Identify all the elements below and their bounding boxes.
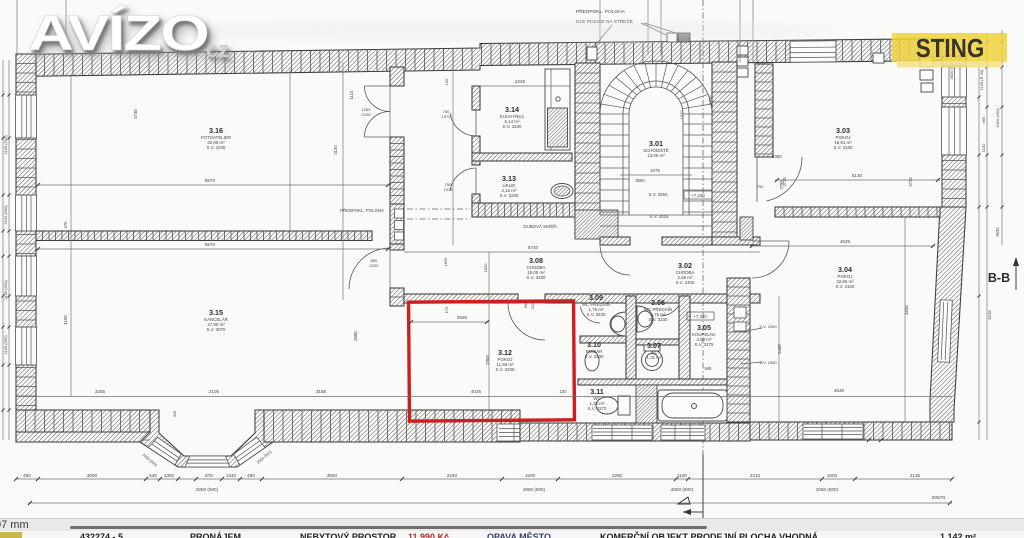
svg-text:3000: 3000 <box>87 473 98 478</box>
svg-text:8570: 8570 <box>205 242 216 247</box>
svg-text:470: 470 <box>63 221 68 229</box>
svg-text:150: 150 <box>444 78 449 85</box>
svg-text:750: 750 <box>757 184 764 189</box>
svg-text:2135: 2135 <box>910 473 921 478</box>
svg-text:S.V. 3250: S.V. 3250 <box>649 192 668 197</box>
svg-text:S.V. 3160: S.V. 3160 <box>834 145 853 150</box>
svg-text:2635: 2635 <box>457 315 468 320</box>
svg-text:S.V. 3025: S.V. 3025 <box>650 214 669 219</box>
svg-text:2100 (900): 2100 (900) <box>3 135 8 155</box>
svg-text:1295: 1295 <box>708 95 713 105</box>
svg-text:2200: 2200 <box>370 263 380 268</box>
svg-text:S.V. 3270: S.V. 3270 <box>588 406 607 411</box>
svg-text:1970: 1970 <box>679 110 684 120</box>
svg-text:4845: 4845 <box>904 305 909 315</box>
svg-text:S.V. 3230: S.V. 3230 <box>496 367 515 372</box>
svg-text:3.05: 3.05 <box>697 323 711 332</box>
svg-text:2100 (900): 2100 (900) <box>3 205 8 225</box>
svg-text:2100: 2100 <box>362 112 372 117</box>
svg-text:3.08: 3.08 <box>529 256 543 265</box>
svg-text:2050 (900): 2050 (900) <box>141 453 158 468</box>
svg-text:2225: 2225 <box>515 79 526 84</box>
svg-text:1970: 1970 <box>442 114 452 119</box>
svg-text:1970: 1970 <box>444 187 454 192</box>
svg-text:3.13: 3.13 <box>502 174 516 183</box>
svg-text:5130: 5130 <box>852 173 863 178</box>
svg-text:S.V. 3275: S.V. 3275 <box>695 342 714 347</box>
svg-text:1340: 1340 <box>226 473 237 478</box>
svg-text:540: 540 <box>149 473 157 478</box>
svg-text:S.V. 3160: S.V. 3160 <box>836 284 855 289</box>
svg-text:13,05 m²: 13,05 m² <box>647 153 665 158</box>
svg-text:4025: 4025 <box>471 389 482 394</box>
svg-text:S.V. 3230: S.V. 3230 <box>207 145 226 150</box>
svg-text:+7,240: +7,240 <box>691 193 705 198</box>
svg-text:20670: 20670 <box>932 495 946 501</box>
svg-text:3.09: 3.09 <box>589 293 603 302</box>
svg-text:4530: 4530 <box>834 388 845 393</box>
svg-text:9635: 9635 <box>995 227 1000 237</box>
svg-text:870: 870 <box>205 473 213 478</box>
svg-text:4100: 4100 <box>63 315 68 325</box>
svg-text:1060: 1060 <box>772 154 782 159</box>
svg-text:3725: 3725 <box>908 177 913 187</box>
svg-text:3.06: 3.06 <box>651 298 665 307</box>
svg-text:2050 (900): 2050 (900) <box>671 487 694 492</box>
svg-text:S.V. 1900: S.V. 1900 <box>759 324 777 329</box>
svg-text:2105: 2105 <box>209 389 220 394</box>
svg-text:2100 (900): 2100 (900) <box>3 280 8 300</box>
svg-text:1350: 1350 <box>164 473 175 478</box>
svg-text:3400: 3400 <box>777 344 782 354</box>
svg-text:3580: 3580 <box>353 331 358 341</box>
svg-text:3.16: 3.16 <box>209 126 223 135</box>
svg-text:450: 450 <box>23 473 31 478</box>
svg-text:3740: 3740 <box>133 109 138 119</box>
svg-text:8570: 8570 <box>205 178 216 183</box>
svg-text:DUBOVÁ SKŘÍŇ: DUBOVÁ SKŘÍŇ <box>523 224 556 229</box>
svg-text:PŘEDPOKL. POLOHA: PŘEDPOKL. POLOHA <box>340 208 384 213</box>
svg-text:5740: 5740 <box>528 245 539 250</box>
svg-text:1920 (900): 1920 (900) <box>995 108 1000 128</box>
svg-text:3255: 3255 <box>95 389 106 394</box>
svg-text:DLE POZICE NA STŘEŠE: DLE POZICE NA STŘEŠE <box>576 17 633 25</box>
svg-text:B-B: B-B <box>988 271 1010 285</box>
svg-text:3.12: 3.12 <box>498 348 512 357</box>
svg-text:3725: 3725 <box>782 177 787 187</box>
svg-text:1100 (R.30): 1100 (R.30) <box>979 69 984 90</box>
svg-text:3.14: 3.14 <box>505 105 519 114</box>
svg-text:170: 170 <box>444 306 449 313</box>
svg-text:3560: 3560 <box>635 178 645 183</box>
svg-text:+7,340: +7,340 <box>693 314 707 319</box>
svg-text:665: 665 <box>981 116 986 123</box>
svg-text:3185: 3185 <box>316 389 327 394</box>
svg-text:1830: 1830 <box>483 263 488 273</box>
svg-text:2240: 2240 <box>447 473 458 478</box>
svg-text:3130: 3130 <box>333 145 338 155</box>
svg-text:1075: 1075 <box>650 168 660 173</box>
svg-text:2100: 2100 <box>530 300 535 310</box>
svg-text:945: 945 <box>705 366 713 371</box>
svg-text:1100: 1100 <box>981 143 986 152</box>
svg-text:3.02: 3.02 <box>678 261 692 270</box>
svg-text:3630 (900): 3630 (900) <box>950 60 954 79</box>
svg-text:2905: 2905 <box>485 355 490 365</box>
svg-text:S.V. 3070: S.V. 3070 <box>207 327 226 332</box>
svg-text:3.10: 3.10 <box>587 340 601 349</box>
svg-text:2310: 2310 <box>750 473 761 478</box>
svg-text:S.V. 2400: S.V. 2400 <box>676 280 695 285</box>
svg-text:2050 (900): 2050 (900) <box>816 487 839 492</box>
svg-text:S.V. 3230: S.V. 3230 <box>527 275 546 280</box>
svg-text:2050 (900): 2050 (900) <box>196 487 219 492</box>
svg-text:3550: 3550 <box>327 473 338 478</box>
svg-text:1500: 1500 <box>525 473 536 478</box>
svg-text:100: 100 <box>560 389 568 394</box>
svg-text:900: 900 <box>523 301 528 308</box>
svg-text:3.01: 3.01 <box>649 139 663 148</box>
svg-text:3.03: 3.03 <box>836 126 850 135</box>
svg-text:3.07: 3.07 <box>647 341 661 350</box>
svg-text:480: 480 <box>247 473 255 478</box>
svg-text:2050 (900): 2050 (900) <box>523 487 546 492</box>
svg-text:S.V. 3230: S.V. 3230 <box>503 124 522 129</box>
svg-text:4415: 4415 <box>987 310 992 320</box>
svg-text:3.04: 3.04 <box>838 265 852 274</box>
svg-text:1500: 1500 <box>827 473 838 478</box>
svg-text:3.15: 3.15 <box>209 308 223 317</box>
svg-text:4625: 4625 <box>840 239 851 244</box>
svg-text:1110: 1110 <box>349 90 354 99</box>
svg-text:S.V. 3230: S.V. 3230 <box>587 312 606 317</box>
svg-text:3.11: 3.11 <box>590 387 604 396</box>
svg-text:1835: 1835 <box>443 257 448 267</box>
svg-text:S.V. 3230: S.V. 3230 <box>649 317 668 322</box>
svg-text:2100 (900): 2100 (900) <box>3 335 8 355</box>
svg-text:PŘEDPOKL. POLOHA: PŘEDPOKL. POLOHA <box>576 7 626 15</box>
svg-text:1,31 m²: 1,31 m² <box>647 355 662 360</box>
svg-text:S.V. 1900: S.V. 1900 <box>759 360 777 365</box>
svg-text:S.V. 3230: S.V. 3230 <box>585 354 604 359</box>
svg-text:345: 345 <box>173 411 177 417</box>
svg-text:S.V. 3230: S.V. 3230 <box>500 193 519 198</box>
svg-text:1100: 1100 <box>677 473 687 478</box>
svg-text:2280: 2280 <box>612 473 623 478</box>
